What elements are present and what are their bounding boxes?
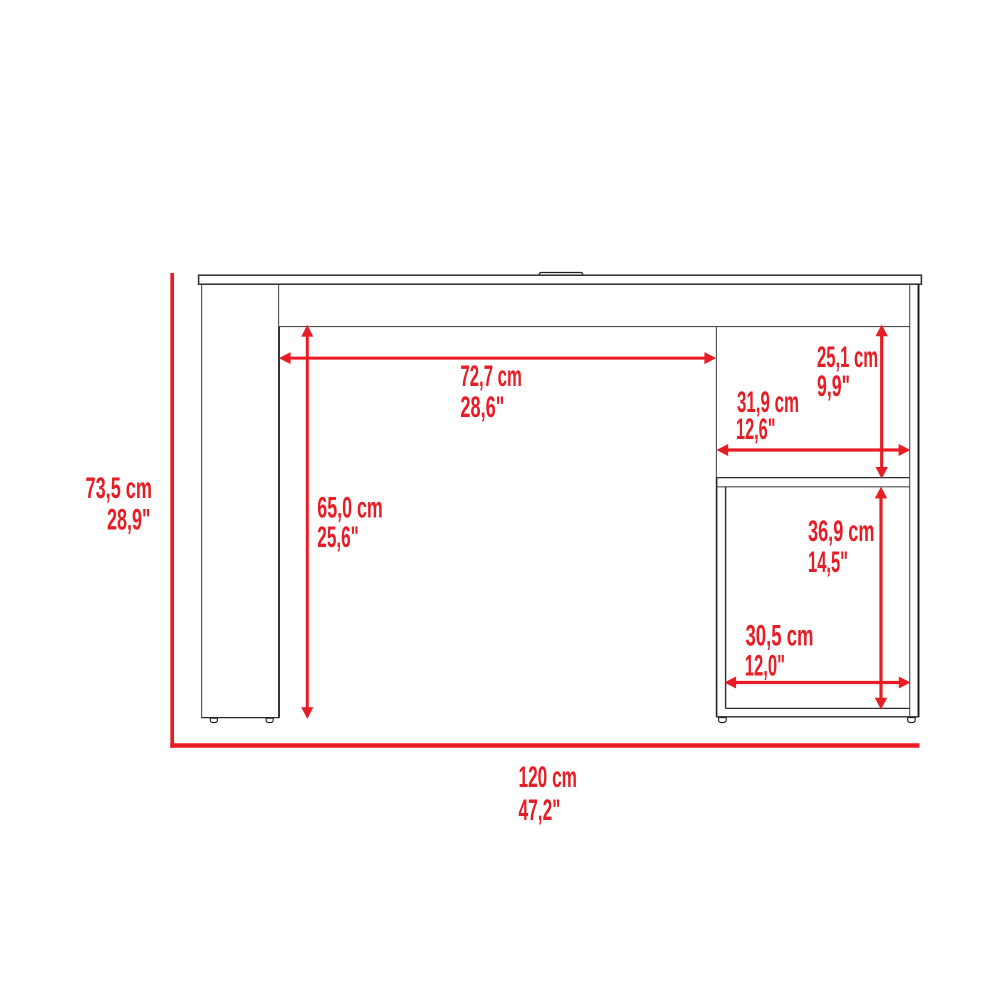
svg-text:30,5 cm: 30,5 cm <box>746 620 814 653</box>
svg-text:12,6": 12,6" <box>736 413 776 446</box>
svg-text:47,2": 47,2" <box>519 794 561 827</box>
svg-text:9,9": 9,9" <box>817 370 850 403</box>
svg-text:25,6": 25,6" <box>317 521 359 554</box>
svg-text:28,6": 28,6" <box>460 391 504 424</box>
svg-text:73,5 cm: 73,5 cm <box>86 472 153 505</box>
svg-text:120 cm: 120 cm <box>519 761 578 794</box>
svg-text:72,7 cm: 72,7 cm <box>460 360 521 393</box>
svg-text:28,9": 28,9" <box>107 504 151 537</box>
svg-text:65,0 cm: 65,0 cm <box>317 492 383 525</box>
svg-text:36,9 cm: 36,9 cm <box>808 515 875 548</box>
svg-text:14,5": 14,5" <box>808 546 848 579</box>
svg-text:12,0": 12,0" <box>745 650 785 683</box>
